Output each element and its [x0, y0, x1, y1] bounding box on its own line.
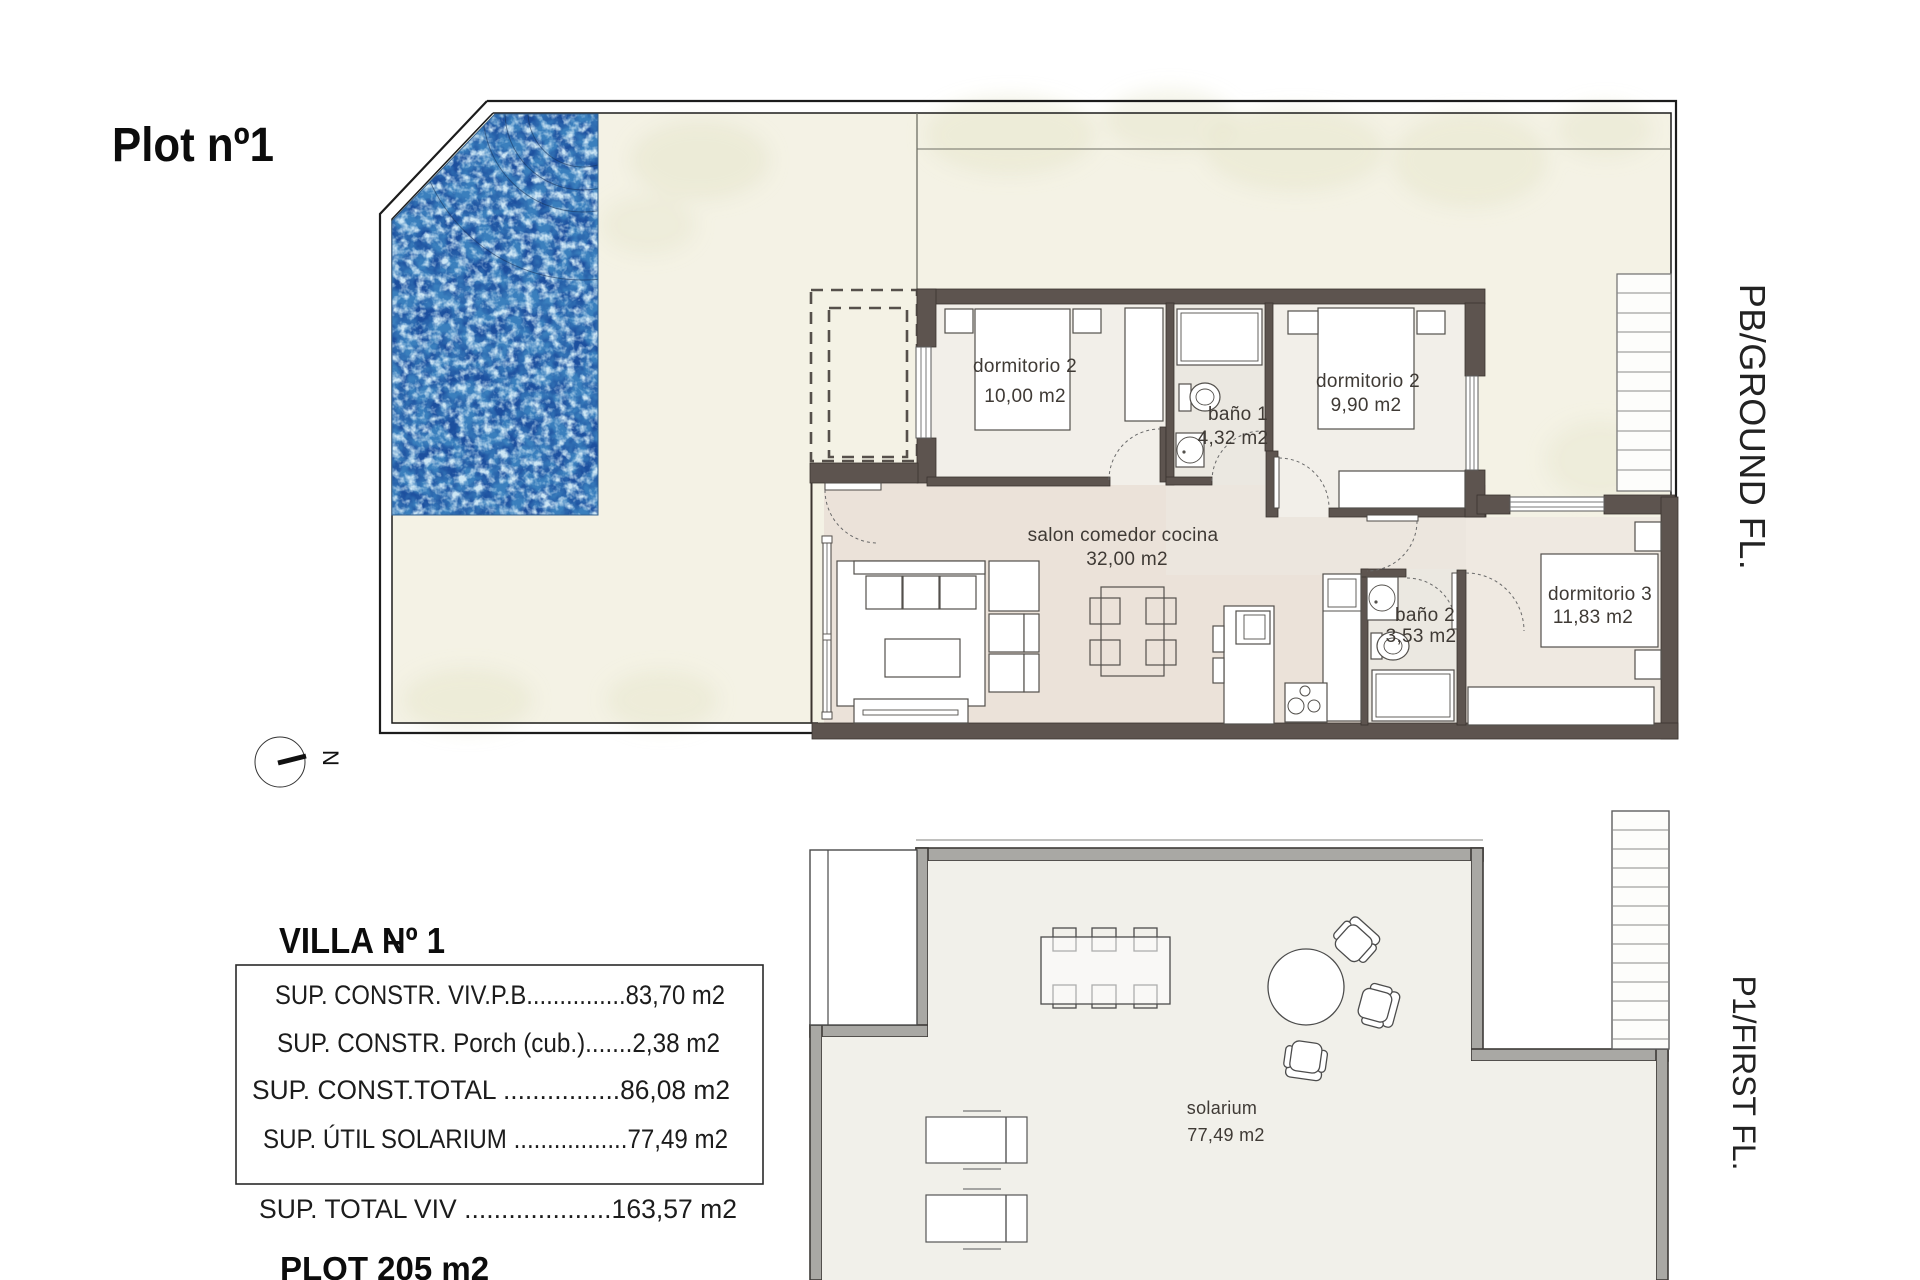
svg-text:32,00 m2: 32,00 m2 [1086, 549, 1168, 570]
svg-text:P1/FIRST FL.: P1/FIRST FL. [1726, 975, 1762, 1170]
svg-text:SUP. CONSTR. Porch (cub.).....: SUP. CONSTR. Porch (cub.).......2,38 m2 [277, 1028, 720, 1058]
svg-text:77,49 m2: 77,49 m2 [1187, 1125, 1264, 1145]
svg-text:dormitorio 2: dormitorio 2 [1316, 371, 1420, 392]
svg-text:3,53 m2: 3,53 m2 [1386, 626, 1457, 647]
svg-text:4,32 m2: 4,32 m2 [1198, 428, 1269, 449]
svg-text:solarium: solarium [1187, 1098, 1257, 1118]
svg-text:dormitorio 3: dormitorio 3 [1548, 584, 1652, 605]
svg-text:VILLA Nº 1: VILLA Nº 1 [279, 920, 445, 961]
svg-text:salon comedor cocina: salon comedor cocina [1028, 525, 1219, 546]
svg-text:11,83 m2: 11,83 m2 [1553, 607, 1633, 628]
svg-text:9,90 m2: 9,90 m2 [1331, 395, 1402, 416]
svg-text:dormitorio 2: dormitorio 2 [973, 356, 1077, 377]
svg-text:N: N [318, 750, 343, 766]
svg-text:baño 2: baño 2 [1395, 605, 1455, 626]
svg-text:10,00 m2: 10,00 m2 [984, 386, 1066, 407]
svg-text:SUP. CONST.TOTAL .............: SUP. CONST.TOTAL ................86,08 m… [252, 1075, 730, 1105]
svg-text:SUP. TOTAL VIV ...............: SUP. TOTAL VIV ....................163,5… [259, 1194, 737, 1224]
svg-text:Plot nº1: Plot nº1 [112, 119, 274, 172]
svg-text:PLOT 205 m2: PLOT 205 m2 [280, 1250, 489, 1280]
svg-text:SUP. CONSTR. VIV.P.B..........: SUP. CONSTR. VIV.P.B...............83,70… [275, 980, 725, 1010]
svg-text:SUP. ÚTIL SOLARIUM ...........: SUP. ÚTIL SOLARIUM .................77,4… [263, 1123, 728, 1154]
svg-text:PB/GROUND FL.: PB/GROUND FL. [1732, 284, 1773, 571]
svg-text:baño 1: baño 1 [1208, 404, 1268, 425]
